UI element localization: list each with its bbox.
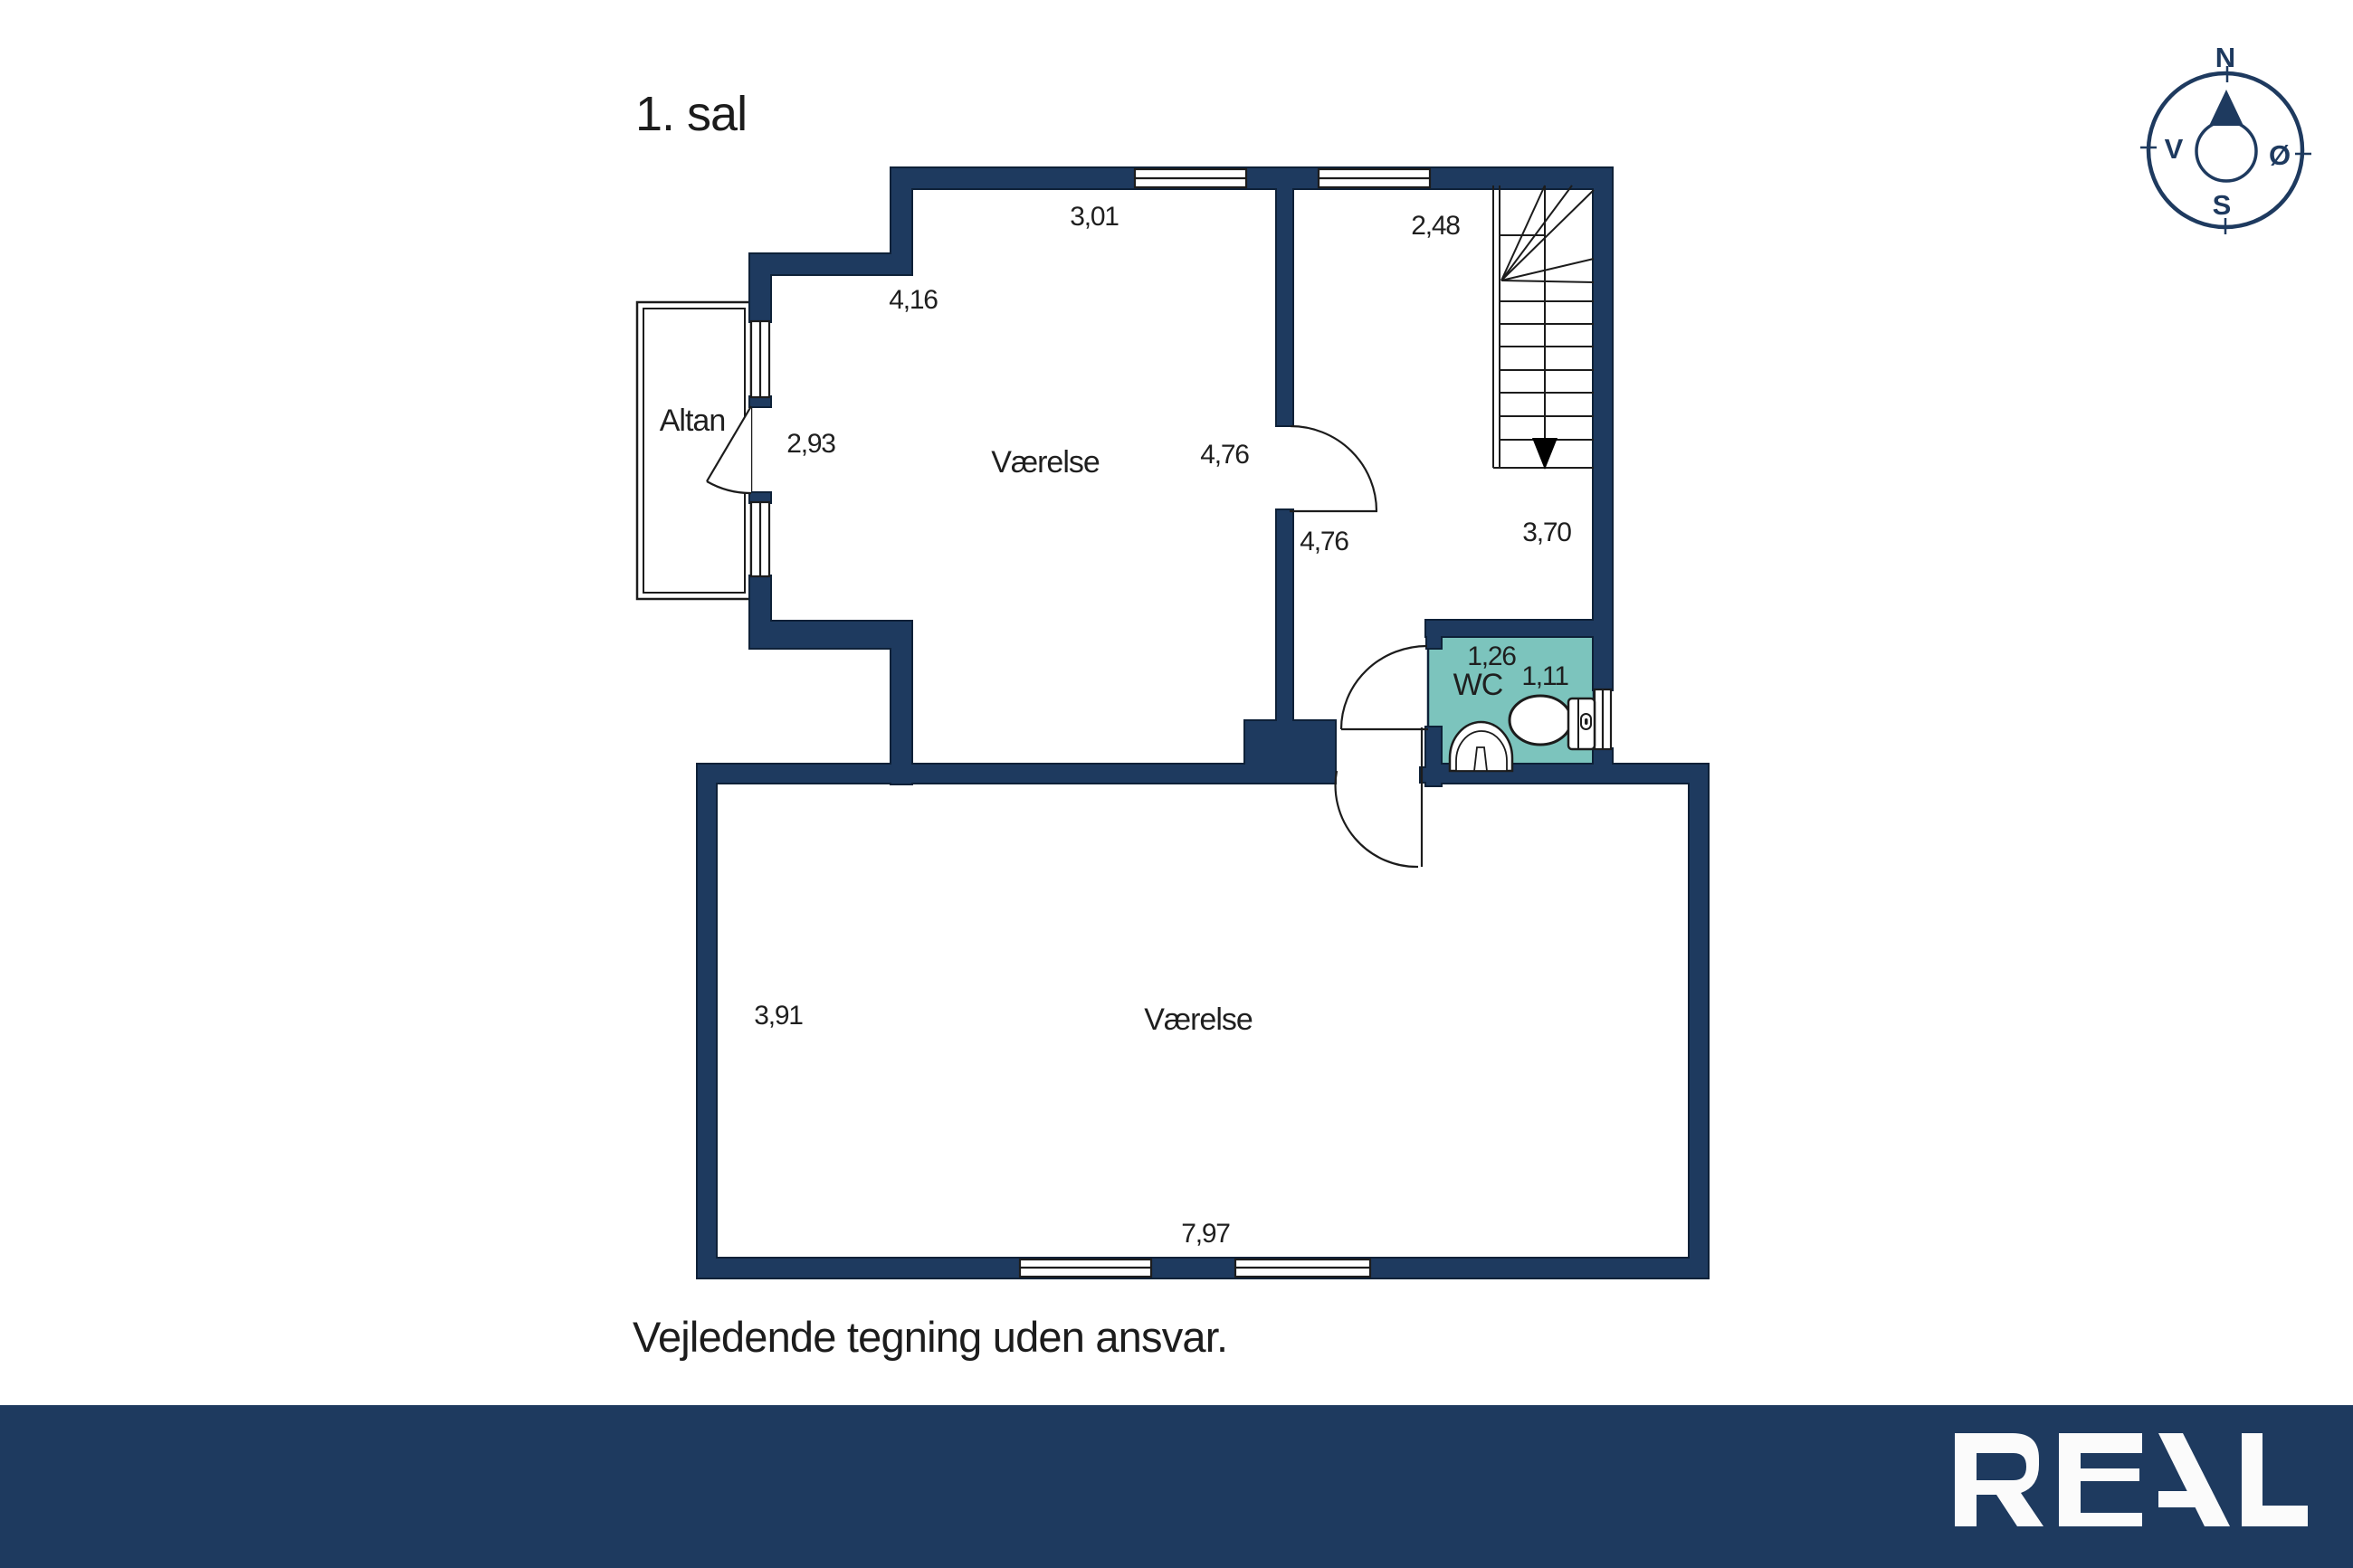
svg-text:1. sal: 1. sal: [635, 87, 747, 141]
svg-text:N: N: [2215, 42, 2235, 73]
svg-text:Værelse: Værelse: [1144, 1003, 1253, 1037]
svg-text:Værelse: Værelse: [991, 445, 1100, 480]
svg-text:3,01: 3,01: [1070, 202, 1119, 232]
svg-text:1,11: 1,11: [1521, 661, 1568, 691]
svg-text:2,93: 2,93: [786, 429, 835, 459]
svg-text:4,16: 4,16: [889, 285, 938, 315]
svg-text:2,48: 2,48: [1411, 211, 1460, 241]
svg-text:7,97: 7,97: [1181, 1219, 1230, 1249]
svg-text:3,91: 3,91: [754, 1001, 803, 1031]
svg-text:Altan: Altan: [660, 404, 726, 438]
svg-text:Ø: Ø: [2269, 139, 2291, 171]
svg-text:S: S: [2213, 189, 2232, 221]
svg-text:Vejledende tegning uden ansvar: Vejledende tegning uden ansvar.: [633, 1313, 1227, 1361]
svg-text:WC: WC: [1453, 668, 1503, 702]
svg-text:4,76: 4,76: [1200, 440, 1249, 470]
svg-text:V: V: [2165, 133, 2184, 165]
svg-text:3,70: 3,70: [1522, 518, 1571, 547]
svg-text:4,76: 4,76: [1300, 527, 1348, 556]
